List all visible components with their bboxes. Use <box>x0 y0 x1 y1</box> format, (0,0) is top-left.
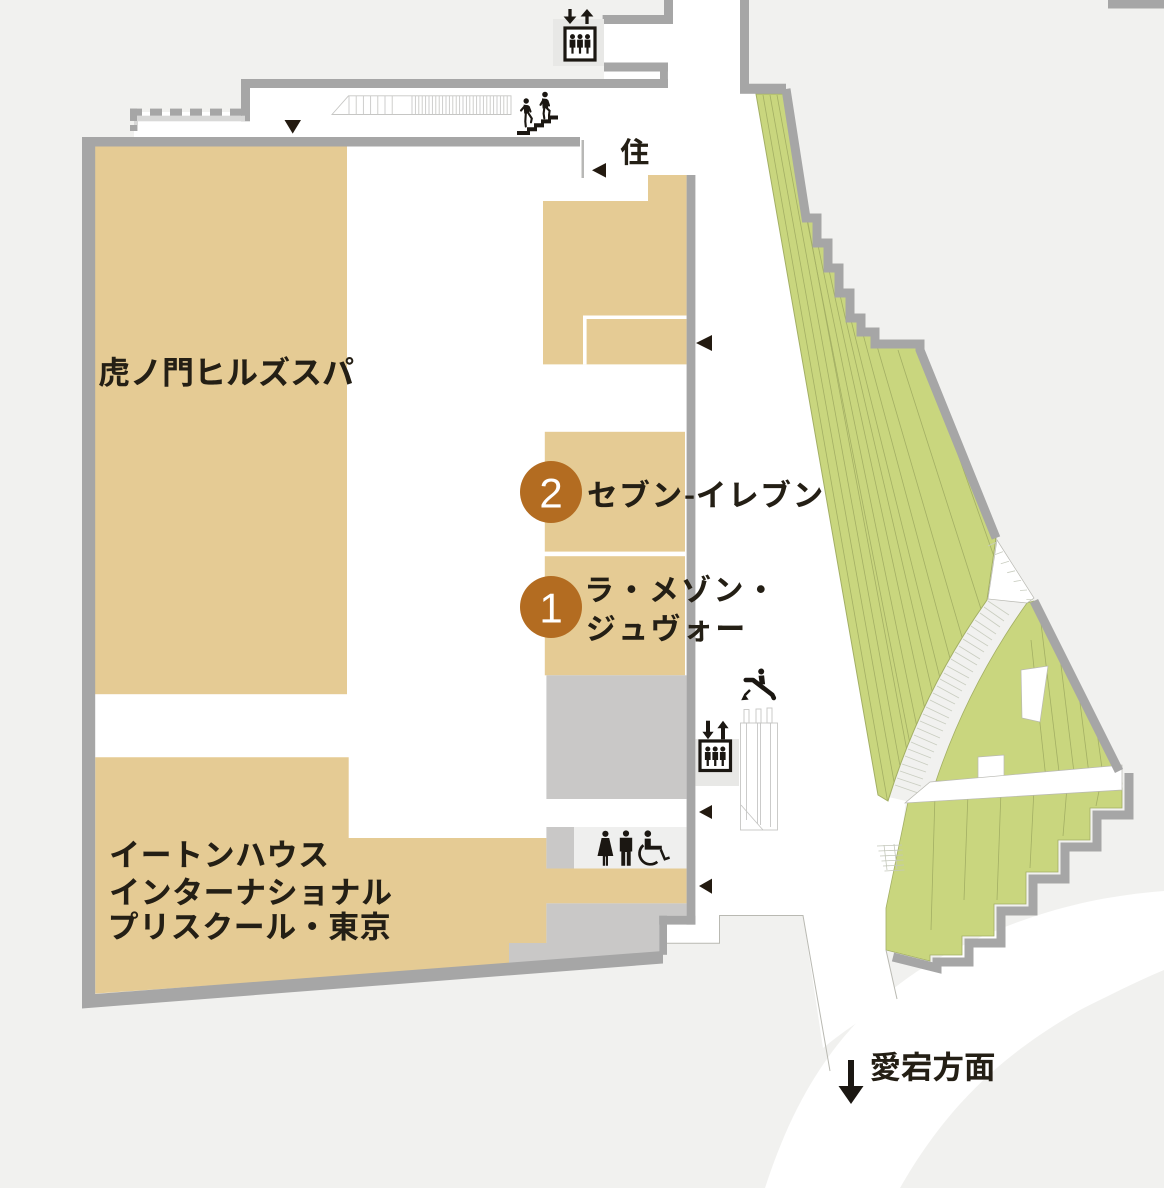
svg-text:2: 2 <box>539 470 562 517</box>
svg-text:1: 1 <box>539 585 562 632</box>
